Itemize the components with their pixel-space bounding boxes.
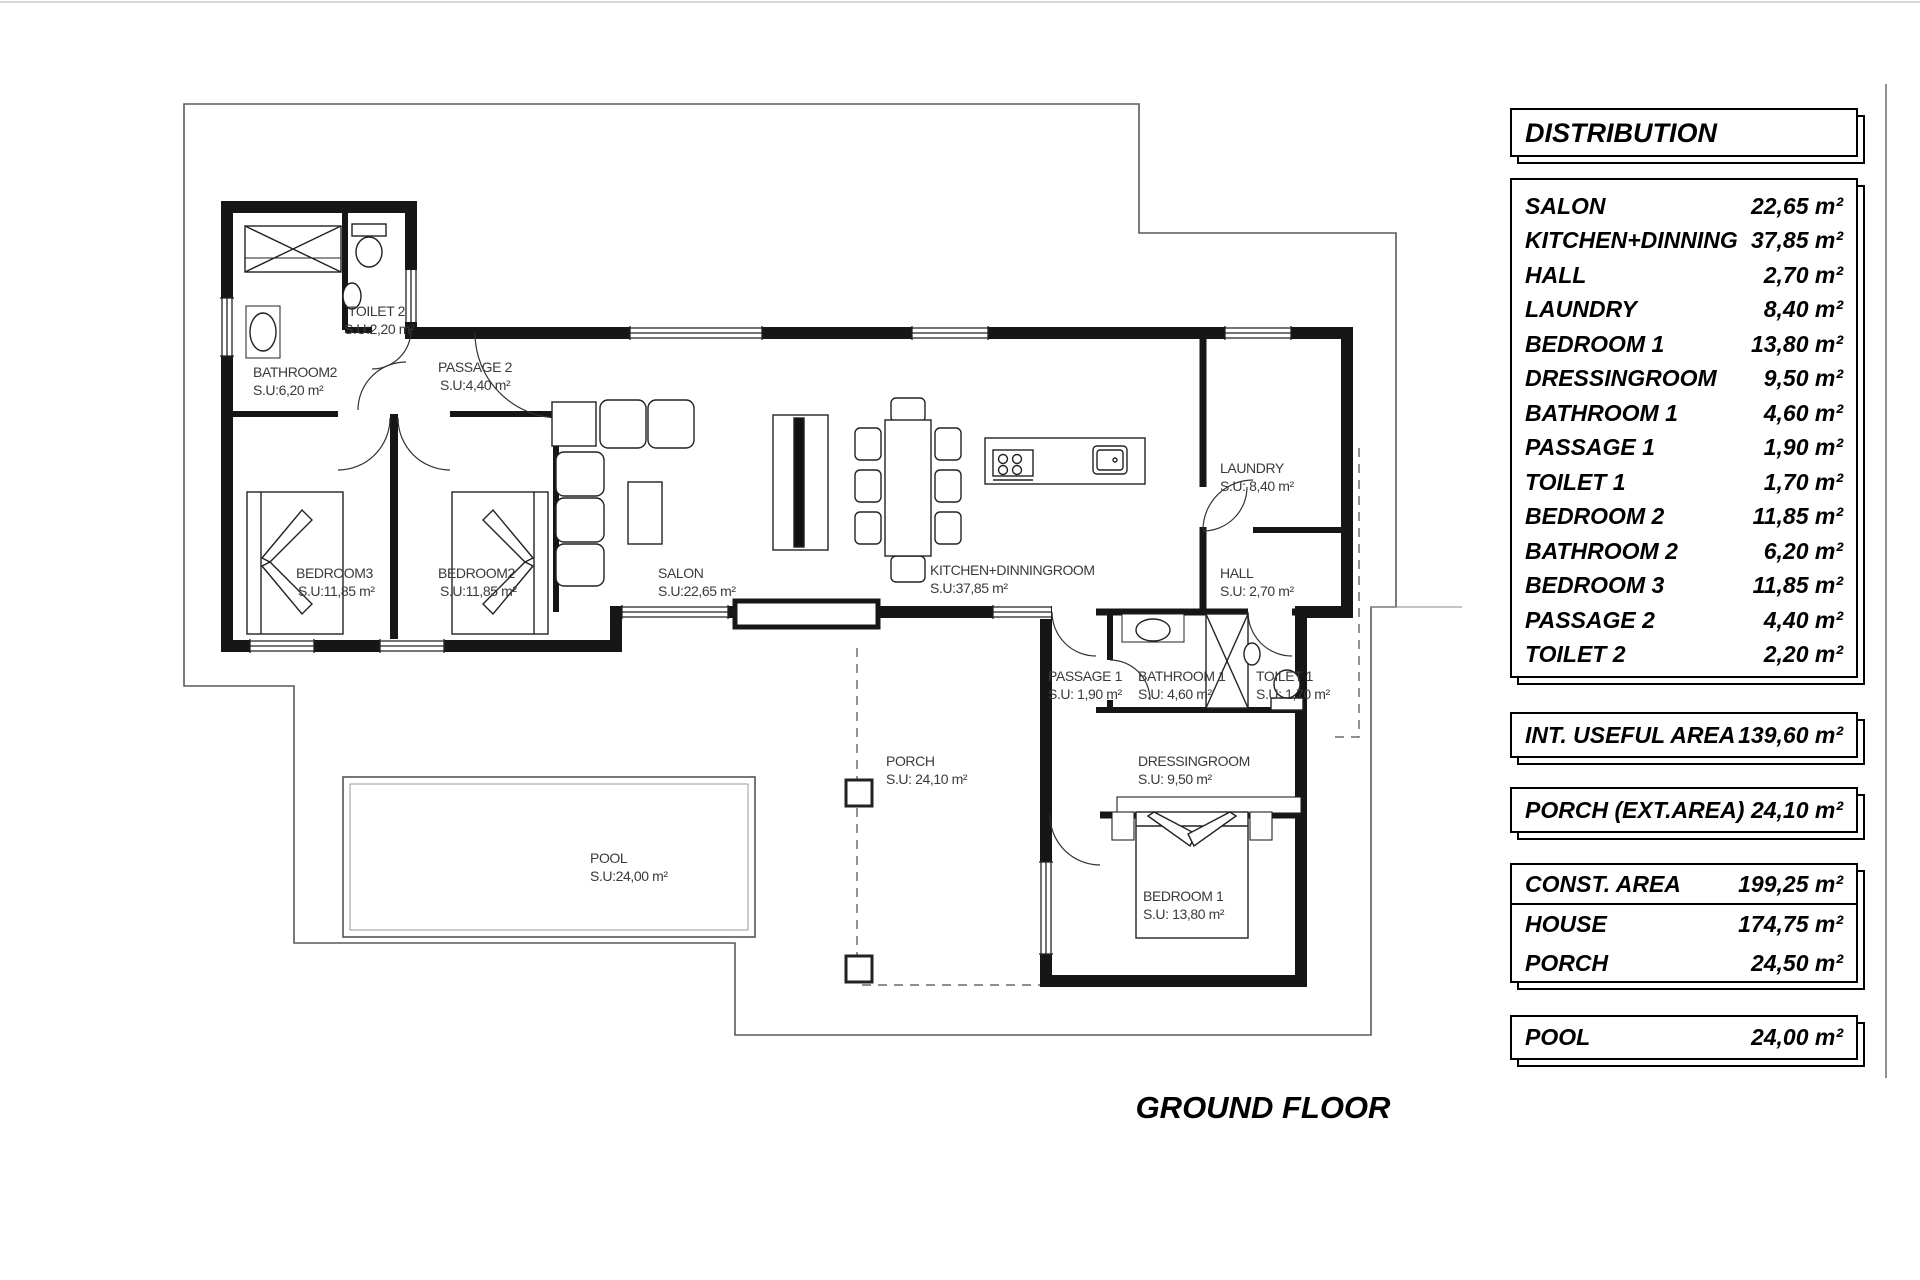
row-label: BEDROOM 3 — [1525, 572, 1664, 599]
sink-symbol — [1122, 614, 1184, 642]
room-area-hall: S.U: 2,70 m² — [1220, 583, 1295, 599]
table-row: TOILET 22,20 m² — [1512, 638, 1856, 673]
window — [220, 298, 234, 356]
table-row: LAUNDRY8,40 m² — [1512, 293, 1856, 328]
room-area-bathroom2: S.U:6,20 m² — [253, 382, 324, 398]
table-row: HOUSE174,75 m² — [1512, 905, 1856, 944]
bed-symbol — [247, 492, 343, 634]
table-row: BEDROOM 113,80 m² — [1512, 327, 1856, 362]
row-value: 2,70 m² — [1764, 262, 1843, 289]
row-value: 24,50 m² — [1751, 950, 1843, 977]
sink-symbol — [246, 306, 280, 358]
row-label: PORCH — [1525, 950, 1608, 977]
row-value: 4,40 m² — [1764, 607, 1843, 634]
row-label: SALON — [1525, 193, 1606, 220]
room-label-passage1: PASSAGE 1 — [1048, 668, 1123, 684]
row-label: LAUNDRY — [1525, 296, 1637, 323]
table-row: HALL2,70 m² — [1512, 258, 1856, 293]
table-row: INT. USEFUL AREA139,60 m² — [1512, 714, 1856, 756]
row-label: BATHROOM 2 — [1525, 538, 1678, 565]
row-value: 139,60 m² — [1738, 722, 1843, 749]
room-label-bathroom2: BATHROOM2 — [253, 364, 338, 380]
window — [622, 605, 728, 619]
row-value: 1,90 m² — [1764, 434, 1843, 461]
porch-column — [846, 780, 872, 806]
row-label: CONST. AREA — [1525, 871, 1681, 898]
row-value: 24,10 m² — [1751, 797, 1843, 824]
room-area-bathroom1: S.U: 4,60 m² — [1138, 686, 1213, 702]
room-label-kitchen: KITCHEN+DINNINGROOM — [930, 562, 1095, 578]
table-row: BEDROOM 311,85 m² — [1512, 569, 1856, 604]
sink-symbol — [1244, 643, 1260, 665]
row-label: BEDROOM 1 — [1525, 331, 1664, 358]
pool-outline — [343, 777, 755, 937]
table-row: TOILET 11,70 m² — [1512, 465, 1856, 500]
row-label: PASSAGE 1 — [1525, 434, 1655, 461]
floor-title: GROUND FLOOR — [1136, 1090, 1391, 1125]
room-area-bedroom1: S.U: 13,80 m² — [1143, 906, 1225, 922]
window — [404, 270, 418, 322]
table-row: PASSAGE 24,40 m² — [1512, 603, 1856, 638]
room-label-bathroom1: BATHROOM 1 — [1138, 668, 1226, 684]
distribution-title-box: DISTRIBUTION — [1510, 108, 1858, 157]
table-row: PASSAGE 11,90 m² — [1512, 431, 1856, 466]
table-row: BATHROOM 14,60 m² — [1512, 396, 1856, 431]
room-label-bedroom3: BEDROOM3 — [296, 565, 374, 581]
row-label: HOUSE — [1525, 911, 1607, 938]
row-value: 4,60 m² — [1764, 400, 1843, 427]
room-area-kitchen: S.U:37,85 m² — [930, 580, 1008, 596]
porch-column — [846, 956, 872, 982]
window — [1225, 326, 1291, 340]
row-value: 24,00 m² — [1751, 1024, 1843, 1051]
south-wall-pier — [735, 601, 878, 627]
distribution-title: DISTRIBUTION — [1512, 110, 1856, 149]
room-label-hall: HALL — [1220, 565, 1254, 581]
room-area-passage2: S.U:4,40 m² — [440, 377, 511, 393]
porch-ext-area-box: PORCH (EXT.AREA)24,10 m² — [1510, 787, 1858, 833]
room-label-porch: PORCH — [886, 753, 935, 769]
row-value: 37,85 m² — [1751, 227, 1843, 254]
row-label: HALL — [1525, 262, 1586, 289]
window — [993, 605, 1051, 619]
row-value: 2,20 m² — [1764, 641, 1843, 668]
window — [630, 326, 762, 340]
window — [380, 639, 444, 653]
room-area-pool: S.U:24,00 m² — [590, 868, 668, 884]
row-value: 6,20 m² — [1764, 538, 1843, 565]
room-label-bedroom1: BEDROOM 1 — [1143, 888, 1224, 904]
drawing-sheet: TOILET 2 S.U:2,20 m² BATHROOM2 S.U:6,20 … — [0, 0, 1920, 1280]
row-value: 13,80 m² — [1751, 331, 1843, 358]
tv-unit-symbol — [773, 415, 828, 550]
table-row: BATHROOM 26,20 m² — [1512, 534, 1856, 569]
shower-symbol — [1206, 614, 1248, 708]
room-area-toilet1: S.U: 1,70 m² — [1256, 686, 1331, 702]
room-label-toilet1: TOILET 1 — [1256, 668, 1314, 684]
row-label: TOILET 1 — [1525, 469, 1626, 496]
room-label-passage2: PASSAGE 2 — [438, 359, 513, 375]
window — [1039, 862, 1053, 954]
room-area-salon: S.U:22,65 m² — [658, 583, 736, 599]
shower-symbol — [245, 226, 341, 272]
room-area-toilet2: S.U:2,20 m² — [344, 321, 415, 337]
row-value: 22,65 m² — [1751, 193, 1843, 220]
room-area-laundry: S.U: 8,40 m² — [1220, 478, 1295, 494]
int-useful-area-box: INT. USEFUL AREA139,60 m² — [1510, 712, 1858, 758]
room-area-porch: S.U: 24,10 m² — [886, 771, 968, 787]
row-label: KITCHEN+DINNING — [1525, 227, 1738, 254]
row-label: INT. USEFUL AREA — [1525, 722, 1735, 749]
table-row: BEDROOM 211,85 m² — [1512, 500, 1856, 535]
distribution-table: SALON22,65 m² KITCHEN+DINNING37,85 m² HA… — [1510, 178, 1858, 678]
row-label: TOILET 2 — [1525, 641, 1626, 668]
room-label-toilet2: TOILET 2 — [348, 303, 406, 319]
window — [250, 639, 314, 653]
row-value: 199,25 m² — [1738, 871, 1843, 898]
table-row: PORCH (EXT.AREA)24,10 m² — [1512, 789, 1856, 831]
row-label: BEDROOM 2 — [1525, 503, 1664, 530]
table-row: POOL24,00 m² — [1512, 1017, 1856, 1058]
table-row: PORCH24,50 m² — [1512, 944, 1856, 983]
room-area-dressingroom: S.U: 9,50 m² — [1138, 771, 1213, 787]
bed-symbol — [452, 492, 548, 634]
row-value: 1,70 m² — [1764, 469, 1843, 496]
room-area-passage1: S.U: 1,90 m² — [1048, 686, 1123, 702]
row-value: 11,85 m² — [1753, 503, 1843, 530]
room-label-pool: POOL — [590, 850, 628, 866]
row-value: 11,85 m² — [1753, 572, 1843, 599]
row-label: PASSAGE 2 — [1525, 607, 1655, 634]
table-row: CONST. AREA199,25 m² — [1512, 865, 1856, 905]
room-label-laundry: LAUNDRY — [1220, 460, 1285, 476]
row-label: DRESSINGROOM — [1525, 365, 1717, 392]
window — [912, 326, 988, 340]
room-area-bedroom2: S.U:11,85 m² — [440, 583, 517, 599]
kitchen-island-symbol — [985, 438, 1145, 484]
row-value: 9,50 m² — [1764, 365, 1843, 392]
const-area-box: CONST. AREA199,25 m² HOUSE174,75 m² PORC… — [1510, 863, 1858, 983]
room-label-bedroom2: BEDROOM2 — [438, 565, 516, 581]
row-label: POOL — [1525, 1024, 1590, 1051]
table-row: SALON22,65 m² — [1512, 189, 1856, 224]
row-value: 8,40 m² — [1764, 296, 1843, 323]
table-row: KITCHEN+DINNING37,85 m² — [1512, 224, 1856, 259]
room-area-bedroom3: S.U:11,85 m² — [298, 583, 375, 599]
row-value: 174,75 m² — [1738, 911, 1843, 938]
row-label: PORCH (EXT.AREA) — [1525, 797, 1744, 824]
table-row: DRESSINGROOM9,50 m² — [1512, 362, 1856, 397]
row-label: BATHROOM 1 — [1525, 400, 1678, 427]
pool-area-box: POOL24,00 m² — [1510, 1015, 1858, 1060]
room-label-salon: SALON — [658, 565, 703, 581]
wardrobe-symbol — [1117, 797, 1301, 813]
room-label-dressingroom: DRESSINGROOM — [1138, 753, 1250, 769]
